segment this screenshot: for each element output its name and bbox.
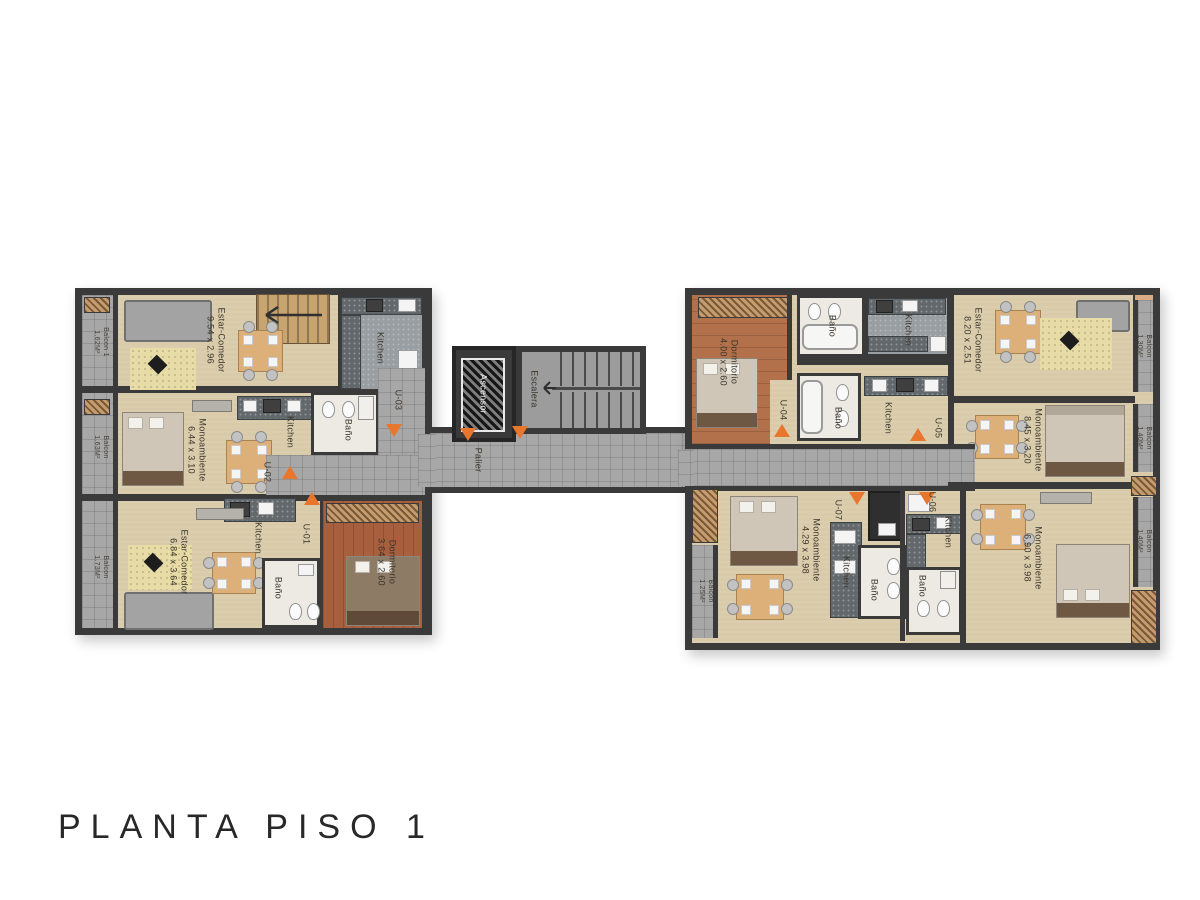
stove xyxy=(366,299,383,312)
label-balcony-u06: Balcon1.40M² xyxy=(1134,529,1152,553)
stove xyxy=(896,378,914,392)
label-stairs: Escalera xyxy=(528,370,539,407)
wardrobe xyxy=(692,489,718,543)
dining-table xyxy=(212,552,256,594)
label-bath-u07: Baño xyxy=(868,579,879,601)
stair-divider xyxy=(552,387,640,390)
label-kitchen-u04: Kitchen xyxy=(902,314,913,346)
kitchen-counter xyxy=(341,315,361,389)
label-balcony-u01: Balcon1.73M² xyxy=(91,555,109,579)
stair-arrow xyxy=(540,378,560,398)
planter xyxy=(84,399,110,415)
wall xyxy=(960,491,966,643)
label-main-u06: Monoambiente6.90 x 3.98 xyxy=(1021,526,1044,589)
hallway xyxy=(685,444,975,491)
wardrobe xyxy=(1131,590,1157,644)
room-bath-u07 xyxy=(858,545,906,619)
label-unit-u01: U-01 xyxy=(300,524,311,545)
stove xyxy=(876,300,893,313)
bed xyxy=(1056,544,1130,618)
sink xyxy=(243,400,257,412)
dining-table xyxy=(995,310,1041,354)
label-unit-u06: U-06 xyxy=(926,492,937,513)
sofa xyxy=(124,592,214,630)
sink xyxy=(298,564,314,576)
dining-table xyxy=(975,415,1019,459)
wardrobe xyxy=(698,297,788,318)
label-unit-u02: U-02 xyxy=(261,462,272,483)
label-kitchen-u01: Kitchen xyxy=(252,522,263,554)
label-kitchen-u07: Kitchen xyxy=(840,556,851,588)
label-kitchen-u05: Kitchen xyxy=(882,402,893,434)
label-bath-u06: Baño xyxy=(916,575,927,597)
bed xyxy=(1045,405,1125,477)
label-main-u05: Monoambiente8.45 x 3.20 xyxy=(1021,408,1044,471)
label-living-u01: Estar-Comedor6.84 x 3.64 xyxy=(167,530,190,595)
stair-flight-lower xyxy=(560,392,640,428)
dining-table xyxy=(736,574,784,620)
entrance-arrow-core xyxy=(460,428,476,441)
row-wall xyxy=(954,396,1135,403)
label-bath-u01: Baño xyxy=(272,577,283,599)
label-bath-u05: Baño xyxy=(832,407,843,429)
stove xyxy=(263,399,281,413)
label-balcony-u05: Balcon1.40M² xyxy=(1134,426,1152,450)
label-balcony-u04: Balcon1.30M² xyxy=(1134,334,1152,358)
label-unit-u07: U-07 xyxy=(832,500,843,521)
sideboard xyxy=(196,508,244,520)
row-wall xyxy=(797,357,950,365)
label-living-u04: Estar-Comedor8.20 x 2.51 xyxy=(961,308,984,373)
wall xyxy=(900,491,905,641)
hallway-opening xyxy=(678,450,694,486)
stair-flight-upper xyxy=(560,352,640,386)
sofa xyxy=(124,300,212,342)
label-landing: Palier xyxy=(472,448,483,473)
corridor-opening xyxy=(418,434,436,487)
kitchen-counter xyxy=(868,336,928,352)
entrance-arrow-u02 xyxy=(282,466,298,479)
label-unit-u05: U-05 xyxy=(932,418,943,439)
label-living-u03: Estar-Comedor9.54 x 2.96 xyxy=(204,308,227,373)
appliance xyxy=(930,336,946,352)
bed xyxy=(122,412,184,486)
wardrobe xyxy=(326,503,419,523)
entrance-arrow-u05 xyxy=(910,428,926,441)
entrance-arrow-u03 xyxy=(386,424,402,437)
plan-title: PLANTA PISO 1 xyxy=(58,808,435,847)
planter xyxy=(84,297,110,313)
sink xyxy=(902,300,918,312)
floor-plan: Ascensor Escalera Palier Estar-Comedor9.… xyxy=(0,0,1200,900)
label-bedroom-u04: Dormitorio4.00 x 2.60 xyxy=(717,338,740,386)
entrance-arrow-u07 xyxy=(849,492,865,505)
label-balcony-u03: Balcon 11.62M² xyxy=(91,327,109,357)
shower xyxy=(358,396,374,420)
label-kitchen-u02: Kitchen xyxy=(284,416,295,448)
label-unit-u03: U-03 xyxy=(392,390,403,411)
entrance-arrow-u04 xyxy=(774,424,790,437)
entrance-arrow-u01 xyxy=(304,492,320,505)
bed xyxy=(730,496,798,566)
bathtub xyxy=(801,380,823,434)
label-elevator: Ascensor xyxy=(477,374,488,414)
planter xyxy=(1131,476,1157,496)
appliance xyxy=(287,400,301,412)
label-balcony-u07: Balcon1.25M² xyxy=(696,579,714,603)
shower xyxy=(940,571,956,589)
label-bath-u02: Baño xyxy=(342,419,353,441)
label-balcony-u02: Balcon1.63M² xyxy=(91,435,109,459)
label-bedroom-u01: Dormitorio3.64 x 2.60 xyxy=(375,538,398,586)
balcony-divider xyxy=(82,386,118,393)
entrance-arrow-core xyxy=(512,426,528,439)
balcony-divider xyxy=(82,494,118,501)
label-kitchen-u06: Kitchen xyxy=(942,516,953,548)
appliance xyxy=(924,379,939,392)
row-wall xyxy=(948,482,1135,489)
dining-table xyxy=(238,330,283,372)
sideboard xyxy=(192,400,232,412)
dining-table xyxy=(980,504,1026,550)
label-bath-u04: Baño xyxy=(826,315,837,337)
label-main-u02: Monoambiente6.44 x 3.10 xyxy=(185,418,208,481)
sink xyxy=(258,502,274,515)
utility-closet xyxy=(868,491,904,541)
label-unit-u04: U-04 xyxy=(777,400,788,421)
stove xyxy=(912,518,930,531)
label-kitchen-u03: Kitchen xyxy=(374,332,385,364)
sink xyxy=(872,379,887,392)
dresser xyxy=(1040,492,1092,504)
sink xyxy=(398,299,416,312)
sink xyxy=(834,530,856,544)
label-main-u07: Monoambiente4.29 x 3.98 xyxy=(799,518,822,581)
